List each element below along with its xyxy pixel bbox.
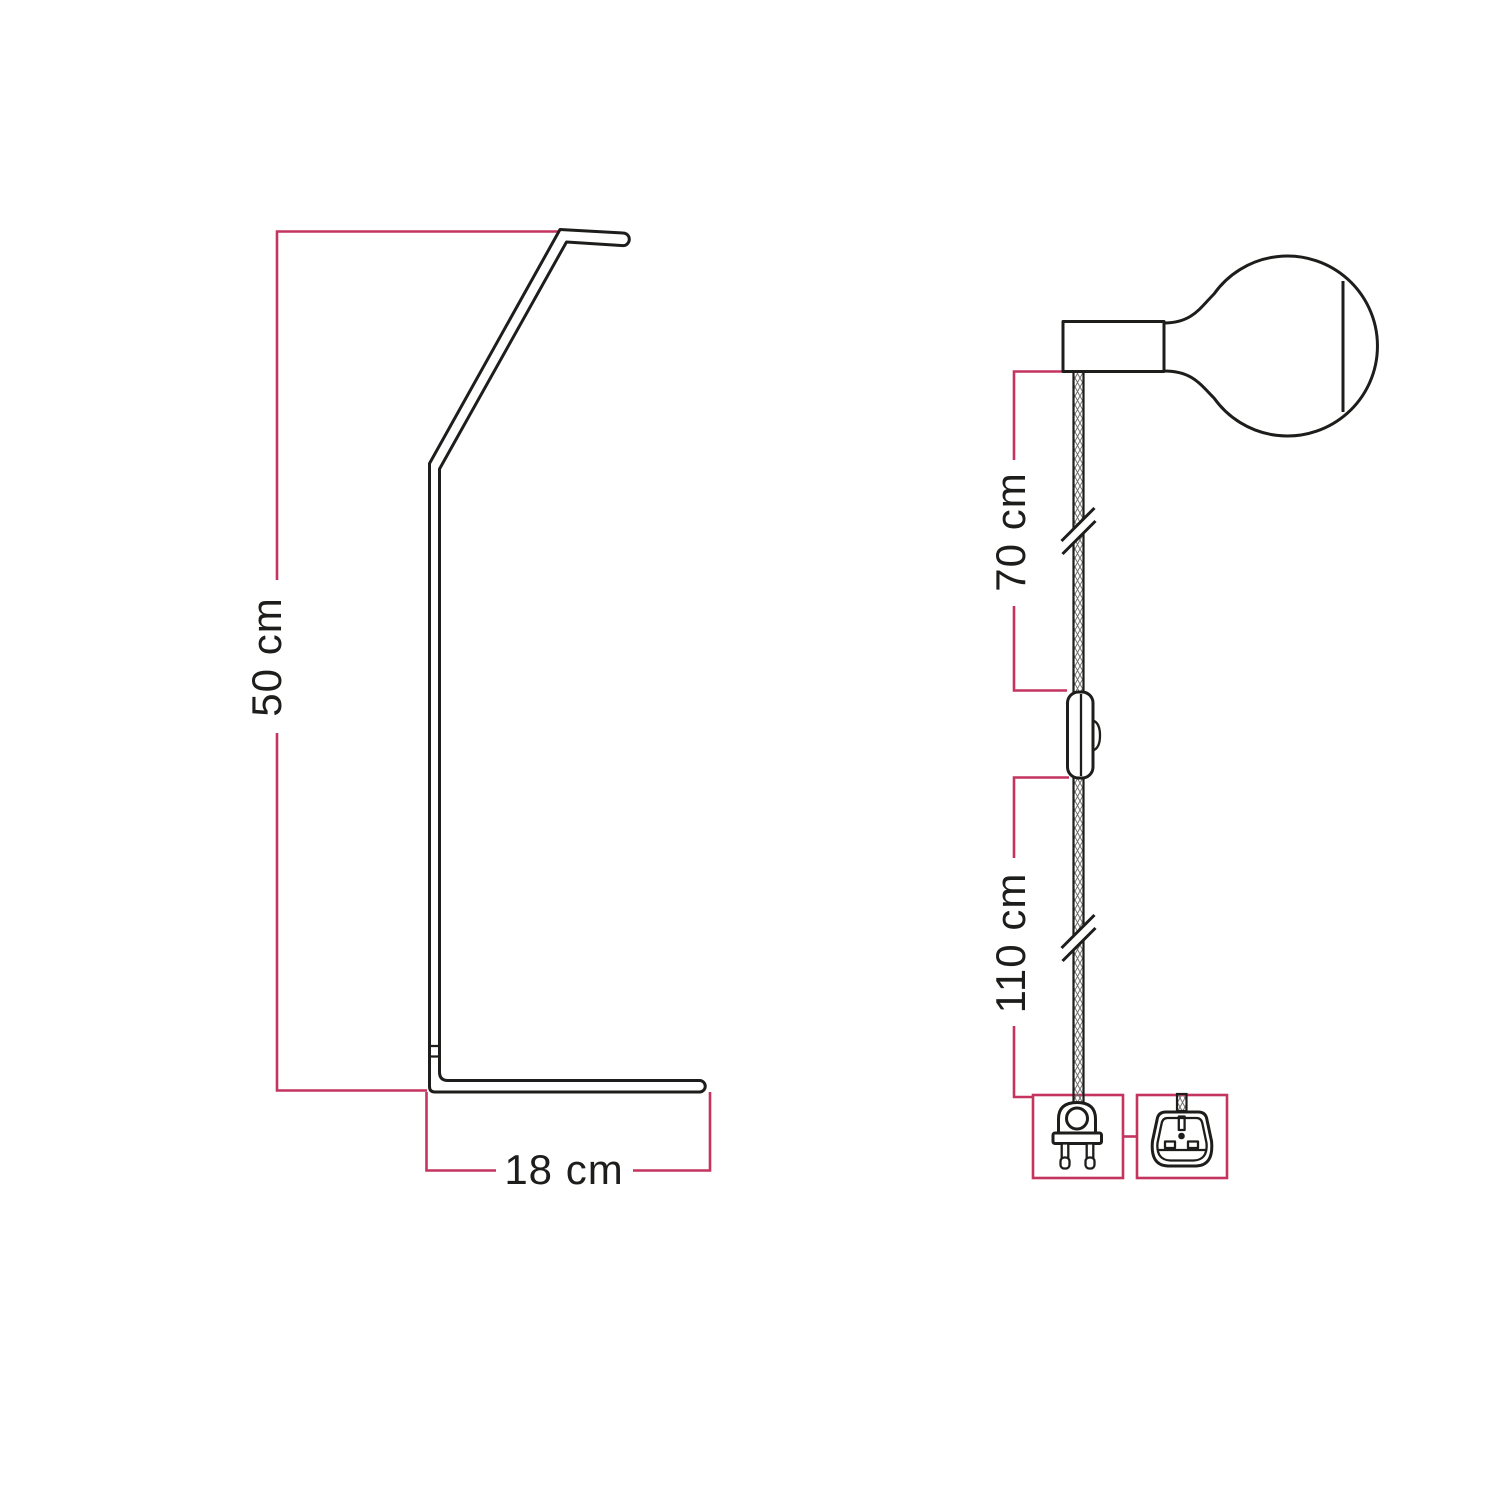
height-dimension-line-upper — [277, 232, 560, 581]
dimension-diagram-page: 50 cm 18 cm 70 cm 110 cm — [0, 0, 1500, 1500]
euro-plug-flange — [1053, 1133, 1102, 1144]
euro-plug-cable-ring — [1067, 1108, 1088, 1129]
upper-cable-dimension-line-top — [1014, 372, 1063, 461]
lower-cable-dimension-line-bottom — [1014, 1026, 1032, 1097]
bulb-globe-outline — [1164, 256, 1377, 436]
diagram-canvas: 50 cm 18 cm 70 cm 110 cm — [0, 0, 1500, 1500]
upper-cable-dimension-line-bottom — [1014, 606, 1067, 691]
lower-cable-dimension-line-top — [1014, 778, 1069, 859]
base-dimension-line-left — [427, 1092, 497, 1171]
upper-cable-dimension-label: 70 cm — [987, 472, 1034, 591]
euro-plug-pin-tip-left — [1061, 1158, 1070, 1169]
height-dimension-label: 50 cm — [243, 597, 290, 716]
lamp-socket — [1063, 322, 1164, 372]
cable-figure: 70 cm 110 cm — [987, 256, 1377, 1178]
stand-figure: 50 cm 18 cm — [243, 230, 710, 1194]
stand-outline — [430, 230, 706, 1093]
height-dimension-line-lower — [277, 733, 427, 1091]
base-dimension-line-right — [633, 1092, 710, 1171]
base-dimension-label: 18 cm — [504, 1146, 623, 1193]
uk-plug-icon — [1152, 1112, 1212, 1166]
euro-plug-icon — [1053, 1103, 1102, 1169]
uk-plug-center-dot — [1178, 1133, 1185, 1140]
cable-uk-plug-stub — [1177, 1094, 1187, 1111]
lower-cable-dimension-label: 110 cm — [987, 873, 1034, 1014]
socket-and-bulb — [1063, 256, 1377, 436]
euro-plug-pin-tip-right — [1086, 1158, 1095, 1169]
inline-switch — [1068, 692, 1101, 778]
